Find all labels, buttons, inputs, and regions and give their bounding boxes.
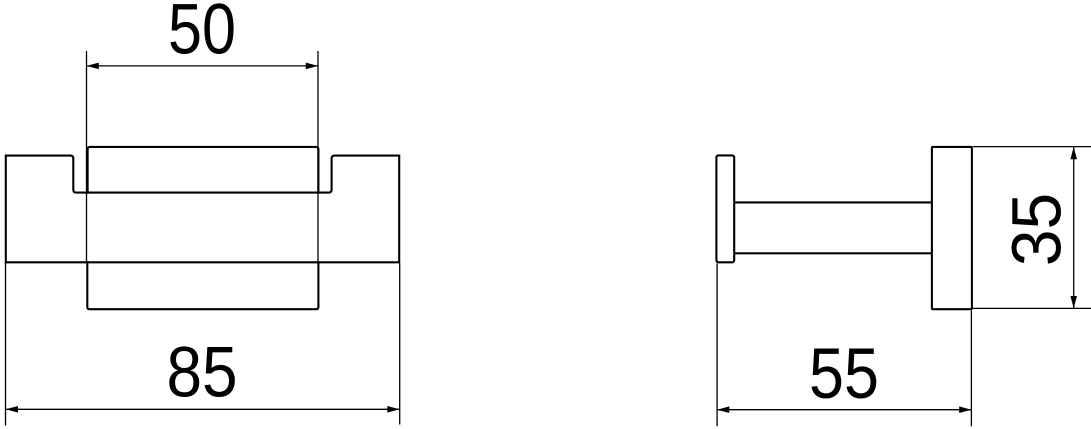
svg-text:55: 55	[809, 334, 879, 413]
svg-text:35: 35	[999, 193, 1076, 266]
svg-text:85: 85	[166, 333, 237, 412]
svg-text:50: 50	[168, 0, 236, 70]
